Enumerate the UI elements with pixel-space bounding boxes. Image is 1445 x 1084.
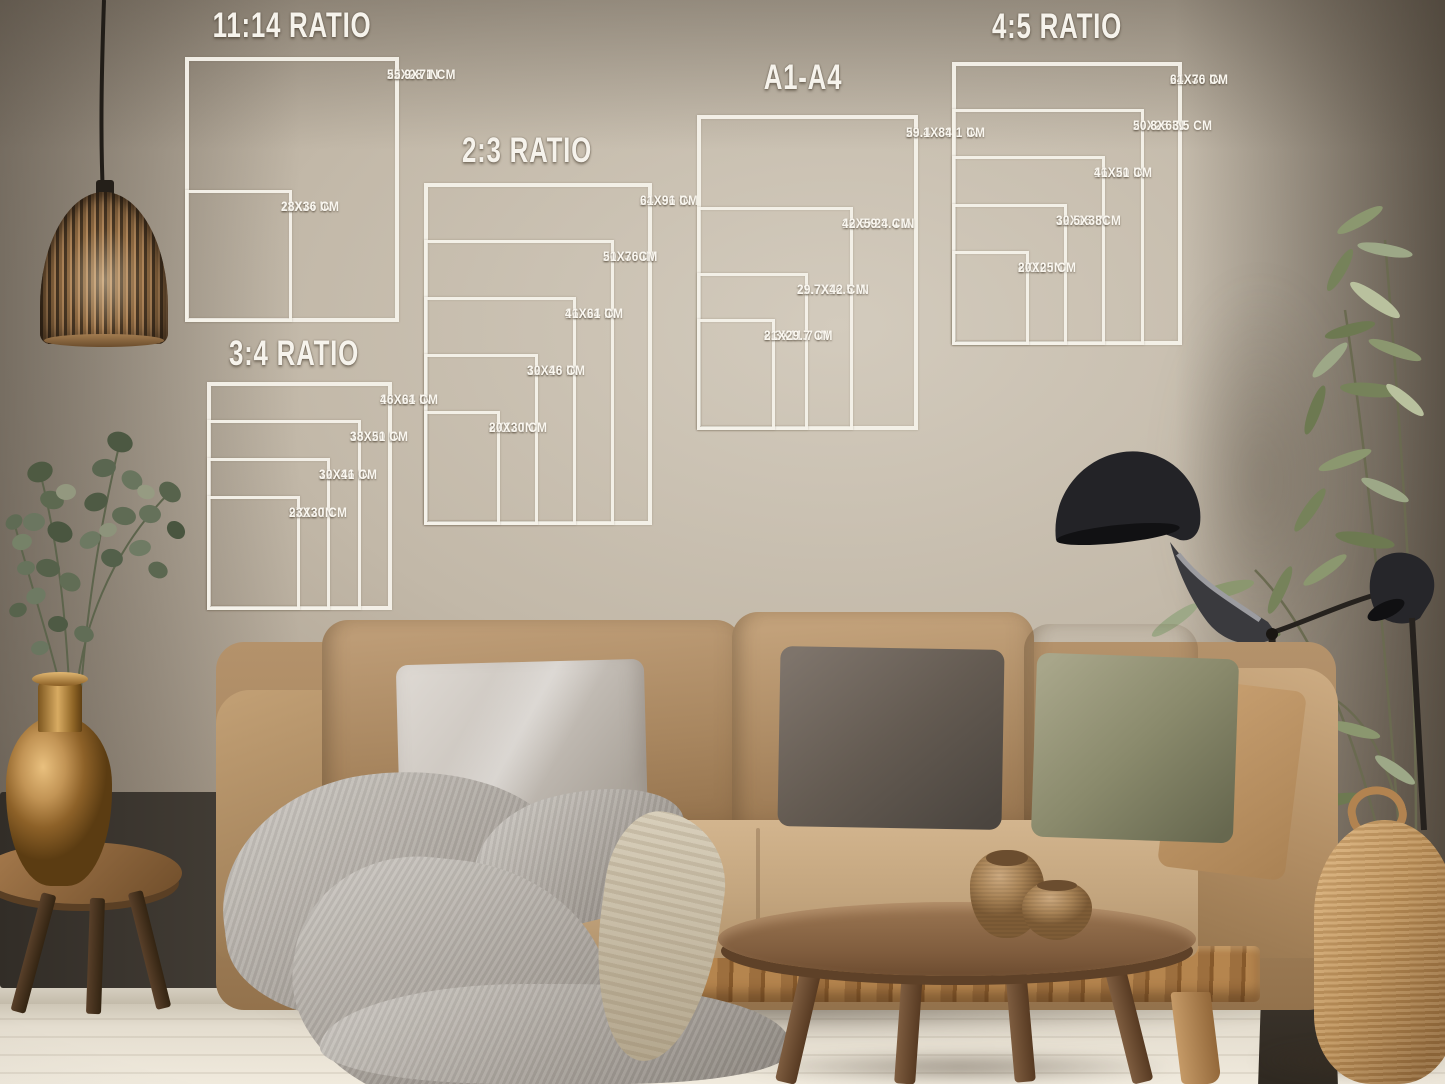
size-cm: 21X29.7 CM [764,327,833,343]
size-cm: 41X61 CM [565,305,623,321]
eucalyptus-plant [0,372,236,708]
pendant-lamp-rim [44,334,164,347]
living-room-scene: 11:14 RATIO22X28 IN55.9X71 CM11X14 IN28X… [0,0,1445,1084]
size-cm: 20X25 CM [1018,259,1076,275]
size-cm: 55.9X71 CM [387,66,456,82]
size-cm: 46X61 CM [380,391,438,407]
size-cm: 50.8X63.5 CM [1133,117,1212,133]
size-rect-4-5-ratio-4: 8X10 IN20X25 CM [952,251,1029,345]
gold-vase-neck [38,680,82,732]
size-cm: 28X36 CM [281,198,339,214]
chart-title-3-4-ratio: 3:4 RATIO [168,336,420,371]
chart-title-4-5-ratio: 4:5 RATIO [931,9,1183,44]
chart-title-a1-a4: A1-A4 [677,60,929,95]
gold-vase-body [6,716,112,886]
gold-vase-lip [32,672,88,686]
size-cm: 30X41 CM [319,466,377,482]
plant-leaves [3,428,189,657]
size-cm: 42X59.4 CM [842,215,911,231]
size-cm: 20X30 CM [489,419,547,435]
size-rect-11-14-ratio-1: 11X14 IN28X36 CM [185,190,292,323]
pillow-dark-gray [777,646,1004,830]
pillow-olive-green [1031,653,1239,844]
floor-lamp-joint [1266,628,1278,640]
floor-lamp-pole-rear [1412,618,1424,830]
coffee-table-top [718,902,1196,976]
jute-vase [1314,820,1445,1084]
table-floor-shadow [740,1050,1180,1084]
pendant-lamp-cord [88,0,118,200]
size-cm: 51X76CM [603,248,658,264]
floor-lamp-shade-large [1055,451,1200,549]
size-cm: 61X76 CM [1170,71,1228,87]
size-cm: 38X51 CM [350,428,408,444]
chart-title-2-3-ratio: 2:3 RATIO [401,133,653,168]
size-rect-2-3-ratio-4: 8X12 IN20X30 CM [424,411,500,525]
size-cm: 30X46 CM [527,362,585,378]
size-cm: 61X91 CM [640,192,698,208]
size-rect-a1-a4-3: 8.3X11.7 IN21X29.7 CM [697,319,775,430]
size-cm: 29.7X42 CM [797,281,866,297]
chart-title-11-14-ratio: 11:14 RATIO [166,8,418,43]
floor-lamp-shade-small [1364,553,1434,626]
size-cm: 23X30 CM [289,504,347,520]
